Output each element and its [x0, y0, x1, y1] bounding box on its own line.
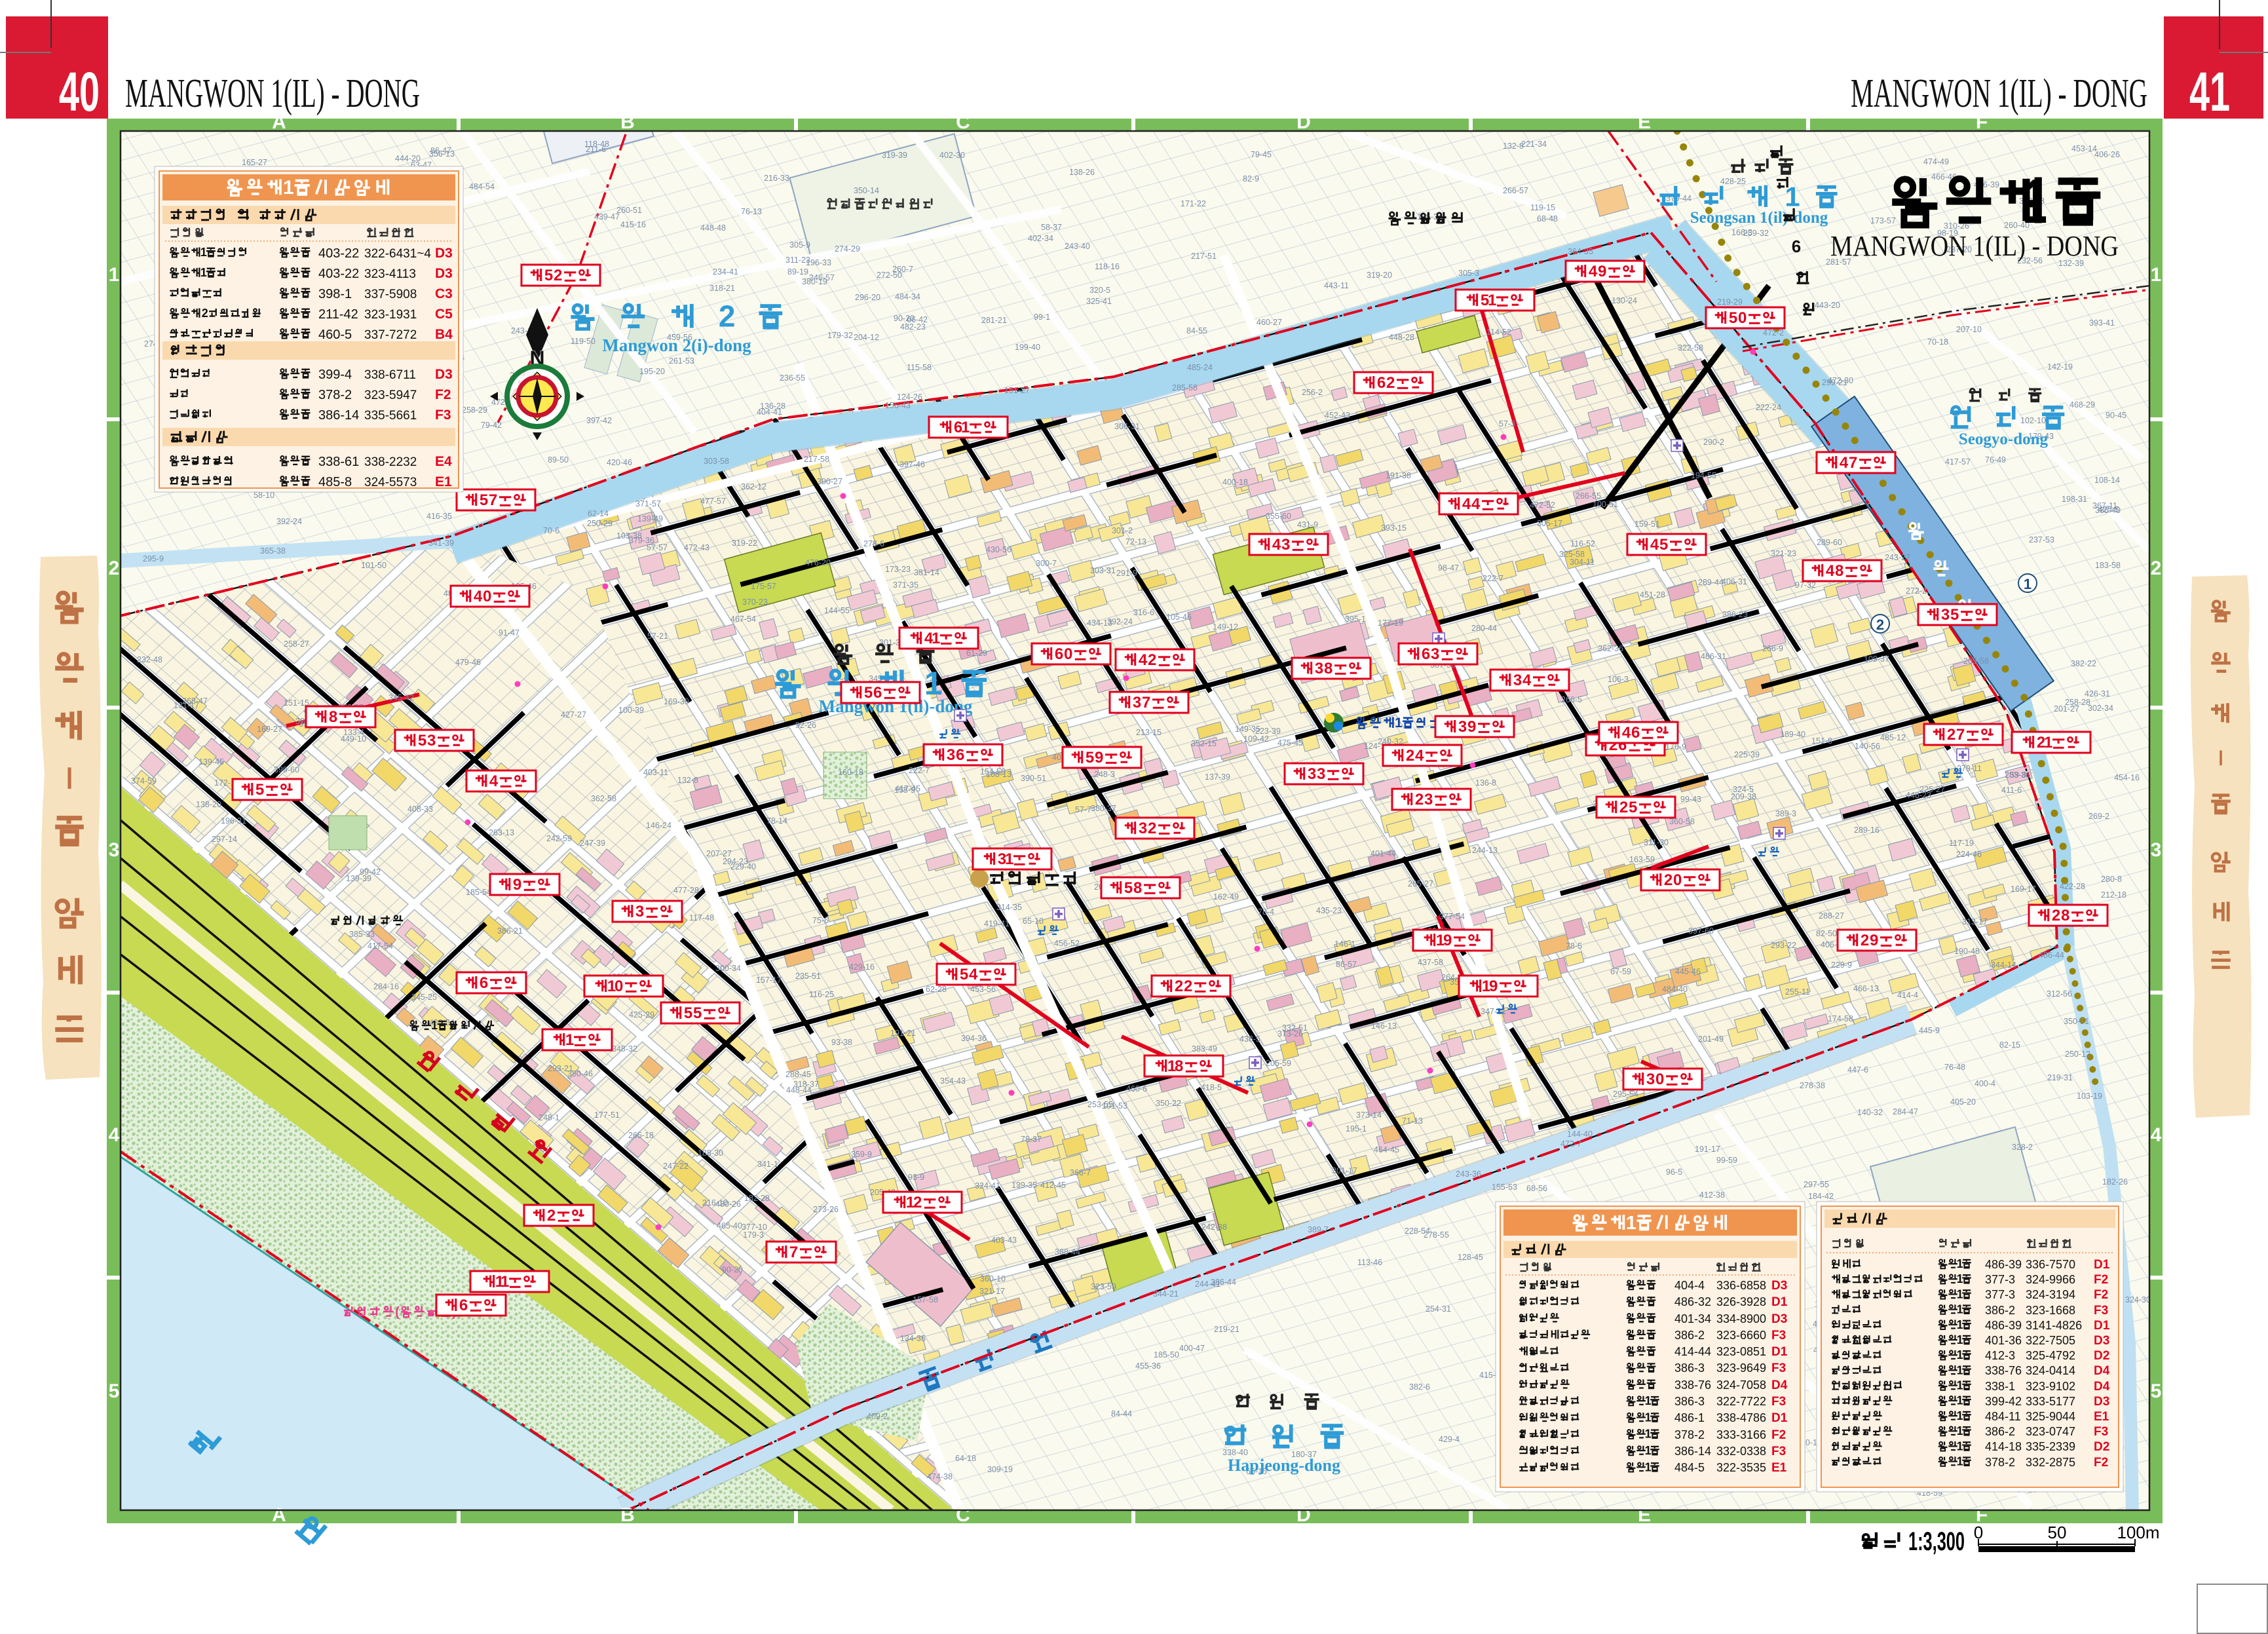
- svg-text:474-38: 474-38: [927, 1472, 953, 1481]
- svg-text:288-27: 288-27: [1819, 911, 1844, 921]
- svg-text:453-14: 453-14: [2071, 144, 2097, 153]
- svg-text:86-57: 86-57: [1336, 960, 1357, 969]
- svg-text:345-25: 345-25: [411, 993, 437, 1002]
- svg-text:9: 9: [1598, 263, 1606, 280]
- svg-text:182-28: 182-28: [744, 1194, 770, 1203]
- svg-text:99-1: 99-1: [1034, 313, 1050, 322]
- svg-text:482-23: 482-23: [900, 322, 926, 332]
- svg-text:272-2: 272-2: [1906, 586, 1927, 596]
- svg-text:266-5: 266-5: [1561, 695, 1582, 704]
- svg-text:142-19: 142-19: [2047, 362, 2073, 371]
- svg-text:3: 3: [1315, 660, 1323, 677]
- svg-text:119-50: 119-50: [571, 337, 595, 346]
- svg-text:4: 4: [489, 772, 499, 790]
- svg-text:4: 4: [1826, 562, 1835, 580]
- svg-text:447-6: 447-6: [1847, 1065, 1868, 1074]
- svg-text:400-4: 400-4: [1975, 1079, 1995, 1088]
- svg-text:401-44: 401-44: [1370, 849, 1396, 858]
- svg-text:485-8: 485-8: [318, 475, 352, 489]
- svg-text:426-31: 426-31: [2085, 689, 2110, 698]
- svg-text:1: 1: [1645, 1411, 1652, 1424]
- svg-text:146-13: 146-13: [1371, 1021, 1397, 1031]
- svg-text:D1: D1: [1771, 1345, 1788, 1359]
- svg-text:400-18: 400-18: [1222, 478, 1248, 487]
- svg-text:293-22: 293-22: [1771, 941, 1796, 950]
- svg-text:309-19: 309-19: [987, 1465, 1013, 1474]
- svg-text:347-31: 347-31: [1481, 1007, 1506, 1016]
- svg-text:415-16: 415-16: [620, 220, 646, 229]
- svg-text:D3: D3: [2094, 1334, 2109, 1348]
- svg-text:207-27: 207-27: [706, 849, 732, 858]
- svg-text:323-5947: 323-5947: [364, 389, 417, 402]
- svg-text:324-9966: 324-9966: [2026, 1273, 2075, 1286]
- svg-text:100-51: 100-51: [1593, 500, 1618, 509]
- svg-text:128-45: 128-45: [1458, 1253, 1483, 1262]
- svg-text:324-5573: 324-5573: [364, 476, 417, 489]
- svg-text:222-7: 222-7: [1483, 574, 1503, 583]
- svg-text:1: 1: [1957, 1318, 1963, 1331]
- svg-text:9: 9: [513, 876, 521, 894]
- svg-text:472-7: 472-7: [1560, 1139, 1581, 1149]
- svg-text:6: 6: [1377, 374, 1386, 392]
- svg-text:1: 1: [1005, 850, 1013, 868]
- svg-text:247-39: 247-39: [580, 839, 605, 848]
- svg-text:448-28: 448-28: [1389, 333, 1414, 342]
- svg-text:224-46: 224-46: [1956, 850, 1982, 859]
- svg-text:366-7: 366-7: [1070, 1168, 1091, 1177]
- svg-text:99-43: 99-43: [1680, 795, 1701, 804]
- svg-text:325-41: 325-41: [1086, 297, 1112, 306]
- svg-text:D3: D3: [1771, 1279, 1787, 1293]
- svg-text:289-16: 289-16: [1854, 826, 1880, 835]
- svg-text:325-58: 325-58: [1559, 550, 1585, 559]
- svg-text:4: 4: [1840, 454, 1849, 472]
- svg-text:472-43: 472-43: [684, 543, 709, 552]
- svg-text:F3: F3: [1771, 1361, 1786, 1375]
- svg-text:454-16: 454-16: [2114, 773, 2140, 782]
- svg-text:8: 8: [1835, 562, 1843, 580]
- svg-text:237-53: 237-53: [2029, 535, 2054, 544]
- svg-text:377-3: 377-3: [1985, 1273, 2015, 1286]
- svg-text:370-23: 370-23: [742, 598, 768, 607]
- svg-text:105-46: 105-46: [1166, 613, 1192, 622]
- svg-text:486-32: 486-32: [1674, 1295, 1711, 1308]
- svg-text:362-12: 362-12: [741, 482, 766, 491]
- svg-text:323-4113: 323-4113: [364, 267, 416, 281]
- svg-text:199-40: 199-40: [1015, 343, 1040, 352]
- svg-text:265-27: 265-27: [1408, 879, 1433, 888]
- svg-text:67-59: 67-59: [1610, 967, 1631, 976]
- svg-text:1: 1: [1395, 715, 1403, 731]
- svg-text:2: 2: [547, 1207, 556, 1225]
- svg-text:283-36: 283-36: [2005, 770, 2030, 780]
- svg-text:402-34: 402-34: [1028, 234, 1053, 243]
- svg-text:477-28: 477-28: [673, 886, 699, 895]
- svg-text:1: 1: [200, 266, 207, 279]
- svg-text:190-48: 190-48: [1954, 947, 1980, 956]
- svg-text:132-8: 132-8: [677, 776, 698, 785]
- svg-text:414-44: 414-44: [1674, 1345, 1711, 1358]
- svg-text:437-58: 437-58: [1418, 958, 1443, 967]
- svg-text:191-17: 191-17: [1695, 1145, 1720, 1154]
- svg-text:3: 3: [1317, 765, 1325, 783]
- svg-text:76-49: 76-49: [1985, 455, 2006, 465]
- svg-text:2: 2: [1947, 726, 1956, 744]
- svg-text:377-54: 377-54: [1439, 912, 1465, 921]
- svg-text:6: 6: [1055, 645, 1063, 663]
- svg-text:F2: F2: [2094, 1273, 2108, 1287]
- svg-text:2: 2: [913, 1194, 922, 1211]
- svg-text:324-7058: 324-7058: [1716, 1378, 1766, 1392]
- svg-text:362-36: 362-36: [1598, 644, 1623, 653]
- svg-text:F3: F3: [2094, 1304, 2108, 1318]
- svg-text:274-29: 274-29: [835, 244, 860, 254]
- svg-text:382-22: 382-22: [2071, 659, 2096, 668]
- svg-text:5: 5: [1086, 749, 1094, 767]
- svg-text:250-29: 250-29: [587, 519, 613, 528]
- svg-text:350-51: 350-51: [2064, 1017, 2089, 1026]
- svg-text:326-3928: 326-3928: [1716, 1295, 1766, 1308]
- svg-text:456-52: 456-52: [1054, 939, 1080, 948]
- svg-text:322-7505: 322-7505: [2026, 1334, 2075, 1347]
- svg-text:4: 4: [1415, 747, 1424, 765]
- svg-text:418-5: 418-5: [1201, 1083, 1222, 1092]
- svg-text:B4: B4: [435, 327, 453, 342]
- svg-text:179-32: 179-32: [827, 331, 853, 340]
- svg-text:7: 7: [1849, 454, 1857, 472]
- svg-text:472-52: 472-52: [1530, 501, 1555, 510]
- svg-text:323-9649: 323-9649: [1716, 1361, 1766, 1375]
- svg-text:101-53: 101-53: [1102, 1101, 1127, 1111]
- svg-text:3: 3: [635, 903, 644, 921]
- svg-text:5: 5: [255, 781, 264, 799]
- svg-text:0: 0: [1738, 309, 1747, 327]
- svg-text:300-7: 300-7: [1036, 559, 1057, 568]
- svg-text:7: 7: [789, 1244, 798, 1261]
- svg-text:2: 2: [1619, 799, 1628, 816]
- svg-text:400-47: 400-47: [1179, 1344, 1205, 1353]
- svg-text:484-34: 484-34: [895, 292, 920, 301]
- svg-text:185-50: 185-50: [1154, 1350, 1179, 1359]
- svg-text:188-30: 188-30: [698, 1149, 723, 1158]
- svg-text:395-1: 395-1: [1345, 615, 1366, 624]
- svg-text:2: 2: [1876, 617, 1884, 633]
- svg-text:397-60: 397-60: [1688, 926, 1714, 936]
- svg-text:472-30: 472-30: [1828, 376, 1853, 385]
- svg-text:82-15: 82-15: [1999, 1040, 2020, 1050]
- svg-text:300-34: 300-34: [715, 964, 741, 973]
- svg-text:323-6660: 323-6660: [1716, 1329, 1766, 1342]
- svg-text:336-7570: 336-7570: [2026, 1258, 2075, 1271]
- svg-text:242-59: 242-59: [546, 834, 572, 843]
- svg-text:258-28: 258-28: [2065, 698, 2090, 707]
- svg-text:324-3194: 324-3194: [2026, 1288, 2075, 1301]
- svg-text:448-44: 448-44: [786, 1086, 812, 1095]
- svg-text:455-36: 455-36: [1135, 1361, 1161, 1371]
- svg-text:3: 3: [1458, 718, 1467, 736]
- svg-text:486-44: 486-44: [2039, 951, 2064, 960]
- svg-text:79-42: 79-42: [481, 421, 502, 430]
- svg-text:379-36: 379-36: [629, 536, 654, 545]
- svg-text:Seongsan 1(il)-dong: Seongsan 1(il)-dong: [1690, 209, 1828, 227]
- svg-text:175-57: 175-57: [751, 582, 776, 591]
- svg-text:397-42: 397-42: [586, 416, 612, 425]
- svg-text:242-38: 242-38: [1201, 1223, 1227, 1232]
- svg-text:486-1: 486-1: [1674, 1411, 1705, 1424]
- svg-text:381-14: 381-14: [914, 568, 939, 577]
- svg-text:328-2: 328-2: [2012, 1143, 2033, 1152]
- svg-text:386-3: 386-3: [1674, 1395, 1705, 1408]
- svg-text:102-10: 102-10: [2020, 416, 2046, 425]
- svg-text:380-37: 380-37: [1091, 804, 1116, 813]
- svg-text:386-23: 386-23: [1722, 610, 1748, 619]
- svg-text:485-12: 485-12: [1880, 733, 1906, 742]
- svg-text:106-3: 106-3: [1608, 675, 1629, 684]
- svg-text:173-57: 173-57: [1870, 216, 1896, 225]
- svg-text:332-0338: 332-0338: [1716, 1445, 1766, 1458]
- svg-text:278-55: 278-55: [1424, 1230, 1449, 1240]
- svg-text:225-27: 225-27: [1919, 785, 1945, 794]
- svg-text:2: 2: [719, 299, 736, 333]
- svg-text:57-7: 57-7: [1075, 805, 1091, 814]
- svg-text:285-58: 285-58: [1172, 383, 1198, 392]
- svg-text:139-45: 139-45: [198, 757, 224, 767]
- svg-text:138-20: 138-20: [196, 800, 221, 809]
- svg-text:344-21: 344-21: [1153, 1289, 1179, 1299]
- svg-text:62-28: 62-28: [926, 985, 947, 994]
- svg-text:338-76: 338-76: [1674, 1378, 1711, 1392]
- svg-text:3: 3: [427, 732, 436, 750]
- svg-text:295-9: 295-9: [143, 554, 164, 563]
- svg-text:406-26: 406-26: [2094, 150, 2120, 159]
- svg-text:386-2: 386-2: [1985, 1304, 2015, 1317]
- svg-text:305-17: 305-17: [1537, 519, 1562, 528]
- svg-text:333-3166: 333-3166: [1716, 1428, 1766, 1441]
- svg-text:398-1: 398-1: [318, 287, 352, 301]
- svg-text:385-33: 385-33: [349, 930, 375, 939]
- svg-text:341-39: 341-39: [428, 539, 454, 548]
- svg-text:229-9: 229-9: [1831, 960, 1852, 970]
- svg-text:386-2: 386-2: [1674, 1329, 1705, 1342]
- svg-text:320-5: 320-5: [1089, 286, 1110, 295]
- svg-text:305-9: 305-9: [789, 240, 810, 250]
- svg-text:179-3: 179-3: [743, 1230, 764, 1240]
- svg-text:6: 6: [480, 974, 488, 992]
- svg-text:1: 1: [1957, 1287, 1963, 1301]
- svg-text:76-48: 76-48: [1944, 1063, 1965, 1072]
- svg-text:3: 3: [1308, 765, 1316, 783]
- svg-text:9: 9: [1489, 978, 1498, 995]
- svg-text:0: 0: [483, 588, 491, 605]
- svg-text:100-39: 100-39: [618, 706, 644, 715]
- svg-text:295-54: 295-54: [1613, 1090, 1638, 1099]
- svg-text:403-43: 403-43: [991, 1236, 1017, 1245]
- svg-text:144-40: 144-40: [1567, 1130, 1593, 1139]
- svg-text:157-58: 157-58: [913, 1295, 938, 1304]
- svg-text:403-22: 403-22: [318, 246, 359, 261]
- svg-text:243-27: 243-27: [1885, 553, 1910, 562]
- svg-text:165-27: 165-27: [242, 158, 267, 167]
- svg-text:91-47: 91-47: [499, 628, 520, 637]
- svg-text:234-41: 234-41: [713, 267, 738, 276]
- svg-text:243-36: 243-36: [1456, 1169, 1481, 1179]
- svg-text:404-4: 404-4: [1674, 1279, 1705, 1292]
- svg-text:221-34: 221-34: [1521, 140, 1547, 149]
- svg-text:219-31: 219-31: [2047, 1073, 2073, 1082]
- svg-text:93-9: 93-9: [908, 1173, 924, 1182]
- svg-text:269-2: 269-2: [2088, 812, 2109, 821]
- svg-text:260-7: 260-7: [892, 265, 913, 274]
- svg-text:5: 5: [684, 1004, 692, 1022]
- svg-text:1: 1: [1645, 1394, 1652, 1407]
- svg-text:460-6: 460-6: [1126, 1084, 1147, 1093]
- svg-text:338-2232: 338-2232: [364, 455, 417, 469]
- svg-text:382-6: 382-6: [1409, 1382, 1430, 1392]
- svg-text:117-48: 117-48: [689, 913, 714, 922]
- svg-text:420-46: 420-46: [607, 458, 632, 467]
- svg-text:64-18: 64-18: [955, 1454, 976, 1463]
- svg-text:341-1: 341-1: [757, 1160, 778, 1169]
- svg-text:6: 6: [1792, 237, 1801, 256]
- svg-text:5: 5: [693, 1004, 702, 1022]
- svg-text:258-27: 258-27: [284, 639, 309, 649]
- svg-text:356-13: 356-13: [429, 149, 455, 159]
- svg-text:397-46: 397-46: [899, 460, 925, 469]
- svg-text:390-27: 390-27: [817, 477, 842, 486]
- svg-text:467-54: 467-54: [730, 615, 756, 624]
- svg-text:1: 1: [1957, 1257, 1963, 1270]
- svg-text:139-49: 139-49: [637, 514, 663, 523]
- svg-text:6: 6: [1422, 645, 1430, 663]
- svg-text:324-5: 324-5: [1733, 785, 1754, 794]
- svg-text:460-5: 460-5: [318, 328, 352, 342]
- svg-text:101-50: 101-50: [361, 561, 387, 570]
- svg-text:1: 1: [2024, 576, 2032, 592]
- svg-text:90-20: 90-20: [894, 314, 915, 323]
- svg-text:F3: F3: [1771, 1329, 1786, 1342]
- svg-text:485-24: 485-24: [1187, 363, 1213, 372]
- svg-text:386-14: 386-14: [318, 408, 359, 423]
- svg-text:E4: E4: [435, 454, 452, 469]
- svg-text:335-5661: 335-5661: [364, 409, 417, 423]
- svg-text:61-29: 61-29: [966, 649, 987, 658]
- svg-text:449-10: 449-10: [341, 734, 366, 744]
- svg-text:348-32: 348-32: [612, 1044, 637, 1054]
- svg-text:303-58: 303-58: [704, 457, 729, 466]
- svg-text:1: 1: [1645, 1460, 1652, 1473]
- svg-text:4: 4: [1522, 672, 1532, 689]
- svg-text:406-31: 406-31: [1722, 577, 1747, 586]
- svg-text:232-48: 232-48: [137, 655, 162, 664]
- svg-text:258-29: 258-29: [462, 406, 487, 415]
- svg-text:8: 8: [2061, 907, 2070, 924]
- svg-text:D3: D3: [435, 246, 453, 261]
- svg-text:216-10: 216-10: [702, 1198, 728, 1207]
- svg-text:3: 3: [1941, 606, 1950, 624]
- svg-text:451-28: 451-28: [1640, 590, 1665, 599]
- svg-text:313-17: 313-17: [1962, 917, 1988, 926]
- svg-text:403-11: 403-11: [643, 768, 668, 777]
- svg-text:403-22: 403-22: [318, 267, 359, 281]
- svg-text:416-35: 416-35: [426, 512, 452, 521]
- svg-text:4: 4: [1471, 495, 1481, 513]
- svg-text:1: 1: [431, 1019, 438, 1032]
- svg-text:425-29: 425-29: [629, 1010, 654, 1019]
- svg-text:D1: D1: [2094, 1258, 2110, 1272]
- svg-text:113-46: 113-46: [1357, 1258, 1382, 1267]
- svg-text:115-58: 115-58: [907, 363, 932, 372]
- svg-text:284-16: 284-16: [373, 982, 399, 991]
- svg-text:408-33: 408-33: [407, 805, 433, 814]
- svg-text:466-13: 466-13: [1853, 984, 1879, 993]
- svg-text:472-2: 472-2: [1763, 328, 1784, 337]
- svg-text:70-6: 70-6: [543, 526, 559, 535]
- svg-text:130-24: 130-24: [1612, 296, 1637, 305]
- svg-text:288-45: 288-45: [785, 1070, 811, 1079]
- svg-text:323-59: 323-59: [1091, 1282, 1116, 1291]
- svg-text:306-31: 306-31: [1114, 422, 1140, 431]
- svg-text:2: 2: [1406, 747, 1414, 765]
- svg-text:2: 2: [202, 307, 208, 320]
- svg-text:159-51: 159-51: [1635, 520, 1660, 529]
- svg-text:4: 4: [1462, 495, 1471, 513]
- svg-text:405-20: 405-20: [1950, 1097, 1976, 1107]
- svg-text:109-37: 109-37: [1864, 655, 1889, 664]
- svg-text:9: 9: [1467, 718, 1476, 736]
- svg-text:1: 1: [932, 630, 940, 647]
- svg-text:5: 5: [1659, 536, 1668, 554]
- svg-text:303-31: 303-31: [1090, 566, 1116, 575]
- svg-text:321-17: 321-17: [979, 1287, 1005, 1296]
- svg-text:207-10: 207-10: [1956, 325, 1982, 334]
- svg-text:5: 5: [864, 684, 873, 702]
- svg-text:108-14: 108-14: [2094, 476, 2120, 485]
- svg-text:246-57: 246-57: [809, 273, 835, 282]
- svg-text:140-32: 140-32: [1857, 1108, 1883, 1117]
- svg-text:72-13: 72-13: [1125, 537, 1146, 546]
- svg-text:1: 1: [501, 1273, 509, 1291]
- svg-text:417-57: 417-57: [1945, 457, 1971, 466]
- svg-text:219-29: 219-29: [1717, 297, 1743, 307]
- svg-text:3: 3: [1646, 1071, 1655, 1088]
- svg-text:244-41: 244-41: [1195, 1280, 1220, 1289]
- svg-text:116-25: 116-25: [809, 990, 834, 999]
- svg-text:68-56: 68-56: [1526, 1184, 1547, 1193]
- svg-text:4: 4: [1650, 536, 1659, 554]
- svg-text:92-26: 92-26: [795, 721, 816, 730]
- svg-text:75-6: 75-6: [812, 916, 829, 925]
- svg-text:156-43: 156-43: [885, 401, 911, 410]
- svg-text:280-8: 280-8: [2101, 875, 2122, 884]
- svg-text:57-3: 57-3: [1499, 419, 1515, 428]
- svg-text:0: 0: [614, 978, 623, 995]
- svg-text:58-37: 58-37: [1041, 223, 1062, 232]
- svg-text:281-21: 281-21: [981, 316, 1007, 325]
- svg-text:373-14: 373-14: [1356, 1111, 1382, 1120]
- svg-text:137-39: 137-39: [1205, 772, 1230, 782]
- svg-text:266-9: 266-9: [1762, 644, 1783, 653]
- svg-text:243-40: 243-40: [1065, 242, 1090, 251]
- svg-text:250-12: 250-12: [2065, 1050, 2090, 1059]
- svg-text:114-52: 114-52: [1486, 328, 1511, 337]
- svg-text:3: 3: [947, 746, 955, 764]
- svg-text:F3: F3: [435, 408, 451, 423]
- svg-text:430-56: 430-56: [986, 545, 1011, 554]
- svg-text:177-19: 177-19: [1378, 618, 1403, 628]
- svg-text:334-8900: 334-8900: [1716, 1312, 1766, 1325]
- svg-text:386-21: 386-21: [497, 926, 523, 936]
- svg-text:484-54: 484-54: [469, 182, 495, 191]
